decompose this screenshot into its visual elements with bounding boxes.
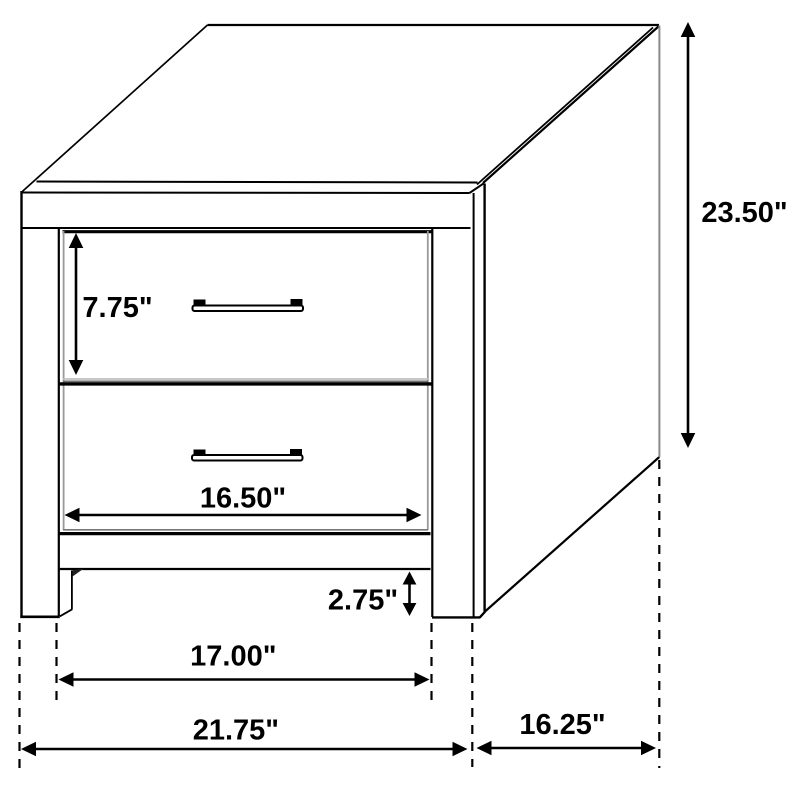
svg-text:2.75": 2.75" <box>328 584 398 616</box>
svg-text:21.75": 21.75" <box>193 715 279 747</box>
svg-text:7.75": 7.75" <box>82 292 152 324</box>
svg-text:16.50": 16.50" <box>200 483 286 515</box>
svg-text:23.50": 23.50" <box>701 197 787 229</box>
svg-text:17.00": 17.00" <box>190 641 276 673</box>
svg-text:16.25": 16.25" <box>519 709 605 741</box>
